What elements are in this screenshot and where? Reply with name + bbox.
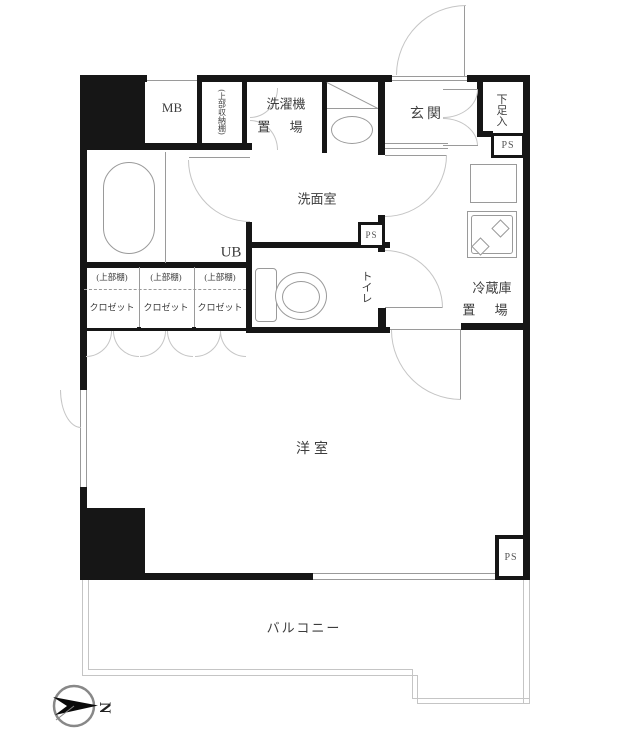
closet-shelf-label: (上部棚) bbox=[204, 271, 235, 283]
compass-icon: N bbox=[46, 680, 126, 733]
room-label-western-room: 洋室 bbox=[296, 438, 332, 458]
balcony-edge bbox=[523, 580, 524, 703]
wall-segment bbox=[461, 323, 530, 330]
door-hinge-dot bbox=[192, 327, 196, 331]
door-swing-arc bbox=[443, 118, 478, 146]
wall-segment bbox=[197, 75, 392, 82]
entrance-step-line bbox=[385, 143, 448, 144]
balcony-edge bbox=[412, 698, 530, 699]
room-label-upper-storage: (上部収納棚) bbox=[217, 89, 228, 134]
closet-door-arc bbox=[86, 331, 112, 357]
closet-label: クロゼット bbox=[197, 301, 242, 314]
door-swing-arc bbox=[188, 160, 250, 222]
wall-segment bbox=[378, 75, 385, 155]
structural-pillar bbox=[85, 508, 145, 580]
room-label-laundry-1: 洗濯機 bbox=[266, 94, 305, 113]
balcony-edge bbox=[88, 580, 89, 670]
balcony-edge bbox=[412, 669, 413, 699]
balcony-edge bbox=[417, 675, 418, 704]
closet-door-arc bbox=[140, 331, 166, 357]
room-label-unit-bath: UB bbox=[221, 245, 242, 262]
pipe-space-label: PS bbox=[365, 230, 377, 240]
room-label-shoe-box: 下足入 bbox=[493, 94, 509, 127]
balcony-edge bbox=[82, 675, 418, 676]
room-label-entrance: 玄関 bbox=[410, 103, 444, 123]
toilet-bowl-inner bbox=[282, 281, 320, 313]
closet-shelf-label: (上部棚) bbox=[96, 271, 127, 283]
vanity-counter-line bbox=[327, 108, 378, 109]
pipe-space-label: PS bbox=[504, 552, 517, 563]
meter-box-opening bbox=[147, 80, 197, 81]
closet-label: クロゼット bbox=[143, 301, 188, 314]
wall-segment bbox=[80, 262, 252, 268]
pipe-space: PS bbox=[358, 222, 385, 248]
entrance-step-line bbox=[385, 148, 448, 149]
window-swing-arc bbox=[60, 390, 81, 428]
wall-segment bbox=[80, 143, 252, 150]
bath-divider-line bbox=[165, 152, 166, 263]
door-hinge-dot bbox=[137, 327, 141, 331]
wall-segment bbox=[242, 75, 247, 150]
balcony-edge bbox=[417, 703, 530, 704]
structural-pillar bbox=[80, 75, 145, 148]
vanity-diagonal-line bbox=[327, 82, 378, 109]
balcony-edge bbox=[88, 669, 413, 670]
balcony-window bbox=[313, 579, 523, 580]
room-label-fridge-2: 置 場 bbox=[462, 300, 515, 319]
wall-segment bbox=[322, 75, 327, 153]
compass-north-letter: N bbox=[96, 702, 113, 714]
door-swing-arc bbox=[391, 330, 461, 400]
closet-divider bbox=[139, 267, 140, 328]
shelf-dashed-line bbox=[84, 289, 246, 290]
window bbox=[86, 390, 87, 487]
pipe-space: PS bbox=[491, 133, 525, 158]
room-label-laundry-2: 置 場 bbox=[257, 117, 310, 136]
bathtub bbox=[103, 162, 155, 254]
toilet-tank bbox=[255, 268, 277, 322]
closet-divider bbox=[194, 267, 195, 328]
balcony-edge bbox=[82, 580, 83, 676]
closet-door-arc bbox=[220, 331, 246, 357]
room-label-washroom: 洗面室 bbox=[297, 189, 336, 208]
entrance-threshold bbox=[392, 76, 467, 77]
door-swing-arc bbox=[385, 250, 443, 308]
balcony-edge bbox=[529, 580, 530, 703]
door-swing-arc bbox=[385, 155, 447, 217]
balcony-window bbox=[313, 573, 523, 574]
pipe-space: PS bbox=[495, 535, 527, 580]
floor-plan: PS PS PS MB (上部収納棚) 洗濯機 置 場 玄関 下足入 洗面室 U… bbox=[0, 0, 626, 733]
shoe-box-door-leaf bbox=[443, 145, 478, 146]
room-label-toilet: トイレ bbox=[358, 271, 374, 304]
room-label-mb: MB bbox=[162, 100, 182, 116]
closet-door-arc bbox=[113, 331, 139, 357]
wall-segment bbox=[197, 75, 202, 150]
bath-door-leaf bbox=[189, 157, 250, 158]
kitchen-sink bbox=[470, 164, 517, 203]
pipe-space-label: PS bbox=[501, 140, 514, 151]
closet-label: クロゼット bbox=[89, 301, 134, 314]
closet-door-arc bbox=[167, 331, 193, 357]
room-label-balcony: バルコニー bbox=[267, 618, 342, 637]
door-swing-arc bbox=[396, 5, 466, 75]
wall-segment bbox=[477, 75, 483, 133]
compass-arrow bbox=[53, 697, 98, 715]
wall-segment bbox=[246, 327, 390, 333]
wall-segment bbox=[246, 242, 252, 333]
vanity-basin bbox=[331, 116, 373, 144]
door-swing-arc bbox=[443, 90, 478, 118]
closet-door-arc bbox=[195, 331, 221, 357]
room-label-fridge-1: 冷蔵庫 bbox=[472, 278, 511, 297]
closet-shelf-label: (上部棚) bbox=[150, 271, 181, 283]
entrance-threshold bbox=[392, 80, 467, 81]
